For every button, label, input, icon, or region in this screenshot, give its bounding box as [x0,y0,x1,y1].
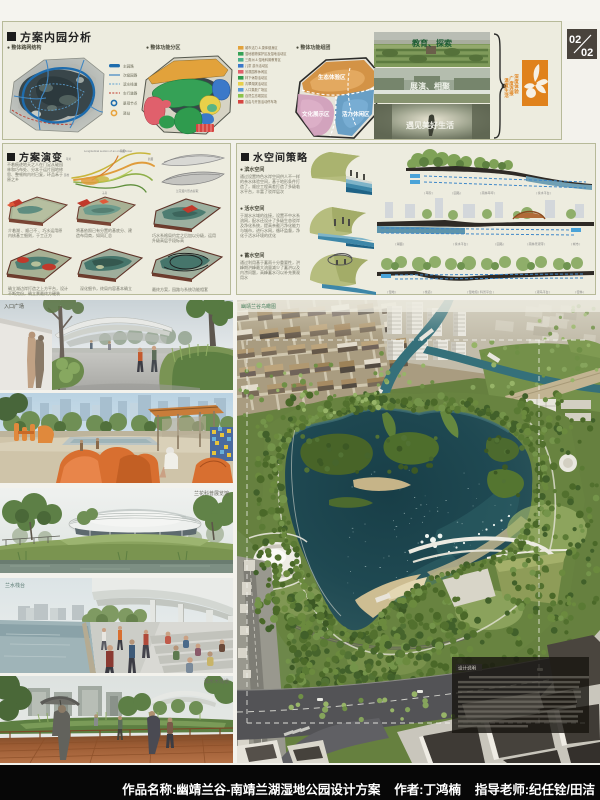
svg-text:滨水栈道: 滨水栈道 [123,82,138,87]
svg-text:| 园路 |: | 园路 | [452,190,461,195]
svg-text:车行道路: 车行道路 [123,91,138,96]
svg-text:自由与开放活动停车场: 自由与开放活动停车场 [245,99,277,104]
svg-text:设计说明: 设计说明 [458,665,476,672]
svg-text:| 湖面 |: | 湖面 | [395,241,404,246]
svg-text:教育、探索: 教育、探索 [411,38,452,48]
svg-text:| 亲水平台 |: | 亲水平台 | [453,241,468,246]
svg-text:02: 02 [569,34,581,46]
svg-text:幽靖兰谷鸟瞰图: 幽靖兰谷鸟瞰图 [241,303,276,310]
svg-text:| 密林 |: | 密林 | [575,289,584,294]
svg-text:唇瓣: 唇瓣 [148,157,154,161]
svg-text:| 草阶 |: | 草阶 | [424,190,433,195]
svg-text:| 湿地 |: | 湿地 | [387,289,396,294]
svg-text:驿站: 驿站 [123,111,131,116]
svg-text:景观园林休闲区: 景观园林休闲区 [245,69,268,74]
svg-text:蕊柱: 蕊柱 [64,173,70,177]
svg-text:兰花瓣片形态提取: 兰花瓣片形态提取 [176,189,199,193]
svg-text:儿童 游乐活动区: 儿童 游乐活动区 [245,63,269,68]
svg-text:生态体验区: 生态体验区 [318,73,346,81]
svg-text:花瓣: 花瓣 [120,149,126,153]
svg-text:| 城市 |: | 城市 | [571,241,580,246]
svg-text:城市活力 & 康体健身区: 城市活力 & 康体健身区 [245,46,278,50]
svg-text:次级园路: 次级园路 [123,73,138,78]
svg-text:| 疏林景观带 |: | 疏林景观带 | [527,241,545,246]
svg-text:活力休闲区: 活力休闲区 [342,110,370,118]
svg-text:展演、相聚: 展演、相聚 [409,81,451,91]
svg-text:02: 02 [581,47,593,59]
svg-text:林下休憩活动区: 林下休憩活动区 [245,75,268,80]
svg-text:遇见美好生活: 遇见美好生活 [406,120,454,130]
svg-text:青翠湖滨活动区: 青翠湖滨活动区 [245,81,268,86]
svg-text:文化展示区: 文化展示区 [302,110,330,118]
svg-text:| 亲水平台 |: | 亲水平台 | [536,190,551,195]
svg-text:入口集散广场区: 入口集散广场区 [245,87,268,92]
svg-text:| 观鸟平台 |: | 观鸟平台 | [535,289,550,294]
svg-text:| 栈道 |: | 栈道 | [423,289,432,294]
svg-text:湿地植物保护区及湿地活动区: 湿地植物保护区及湿地活动区 [245,51,287,56]
svg-text:| 园路 |: | 园路 | [495,241,504,246]
svg-text:自然生态观赏区: 自然生态观赏区 [245,93,268,98]
svg-text:主园路: 主园路 [123,64,134,69]
svg-text:三角洲 & 湿地科普教育区: 三角洲 & 湿地科普教育区 [245,57,282,62]
svg-text:| 湿地泡 | 科普平台 |: | 湿地泡 | 科普平台 | [467,289,494,294]
svg-text:萼片: 萼片 [66,157,72,161]
svg-text:| 疏林草坪 |: | 疏林草坪 | [480,190,495,195]
svg-text:景观节点: 景观节点 [123,101,138,106]
